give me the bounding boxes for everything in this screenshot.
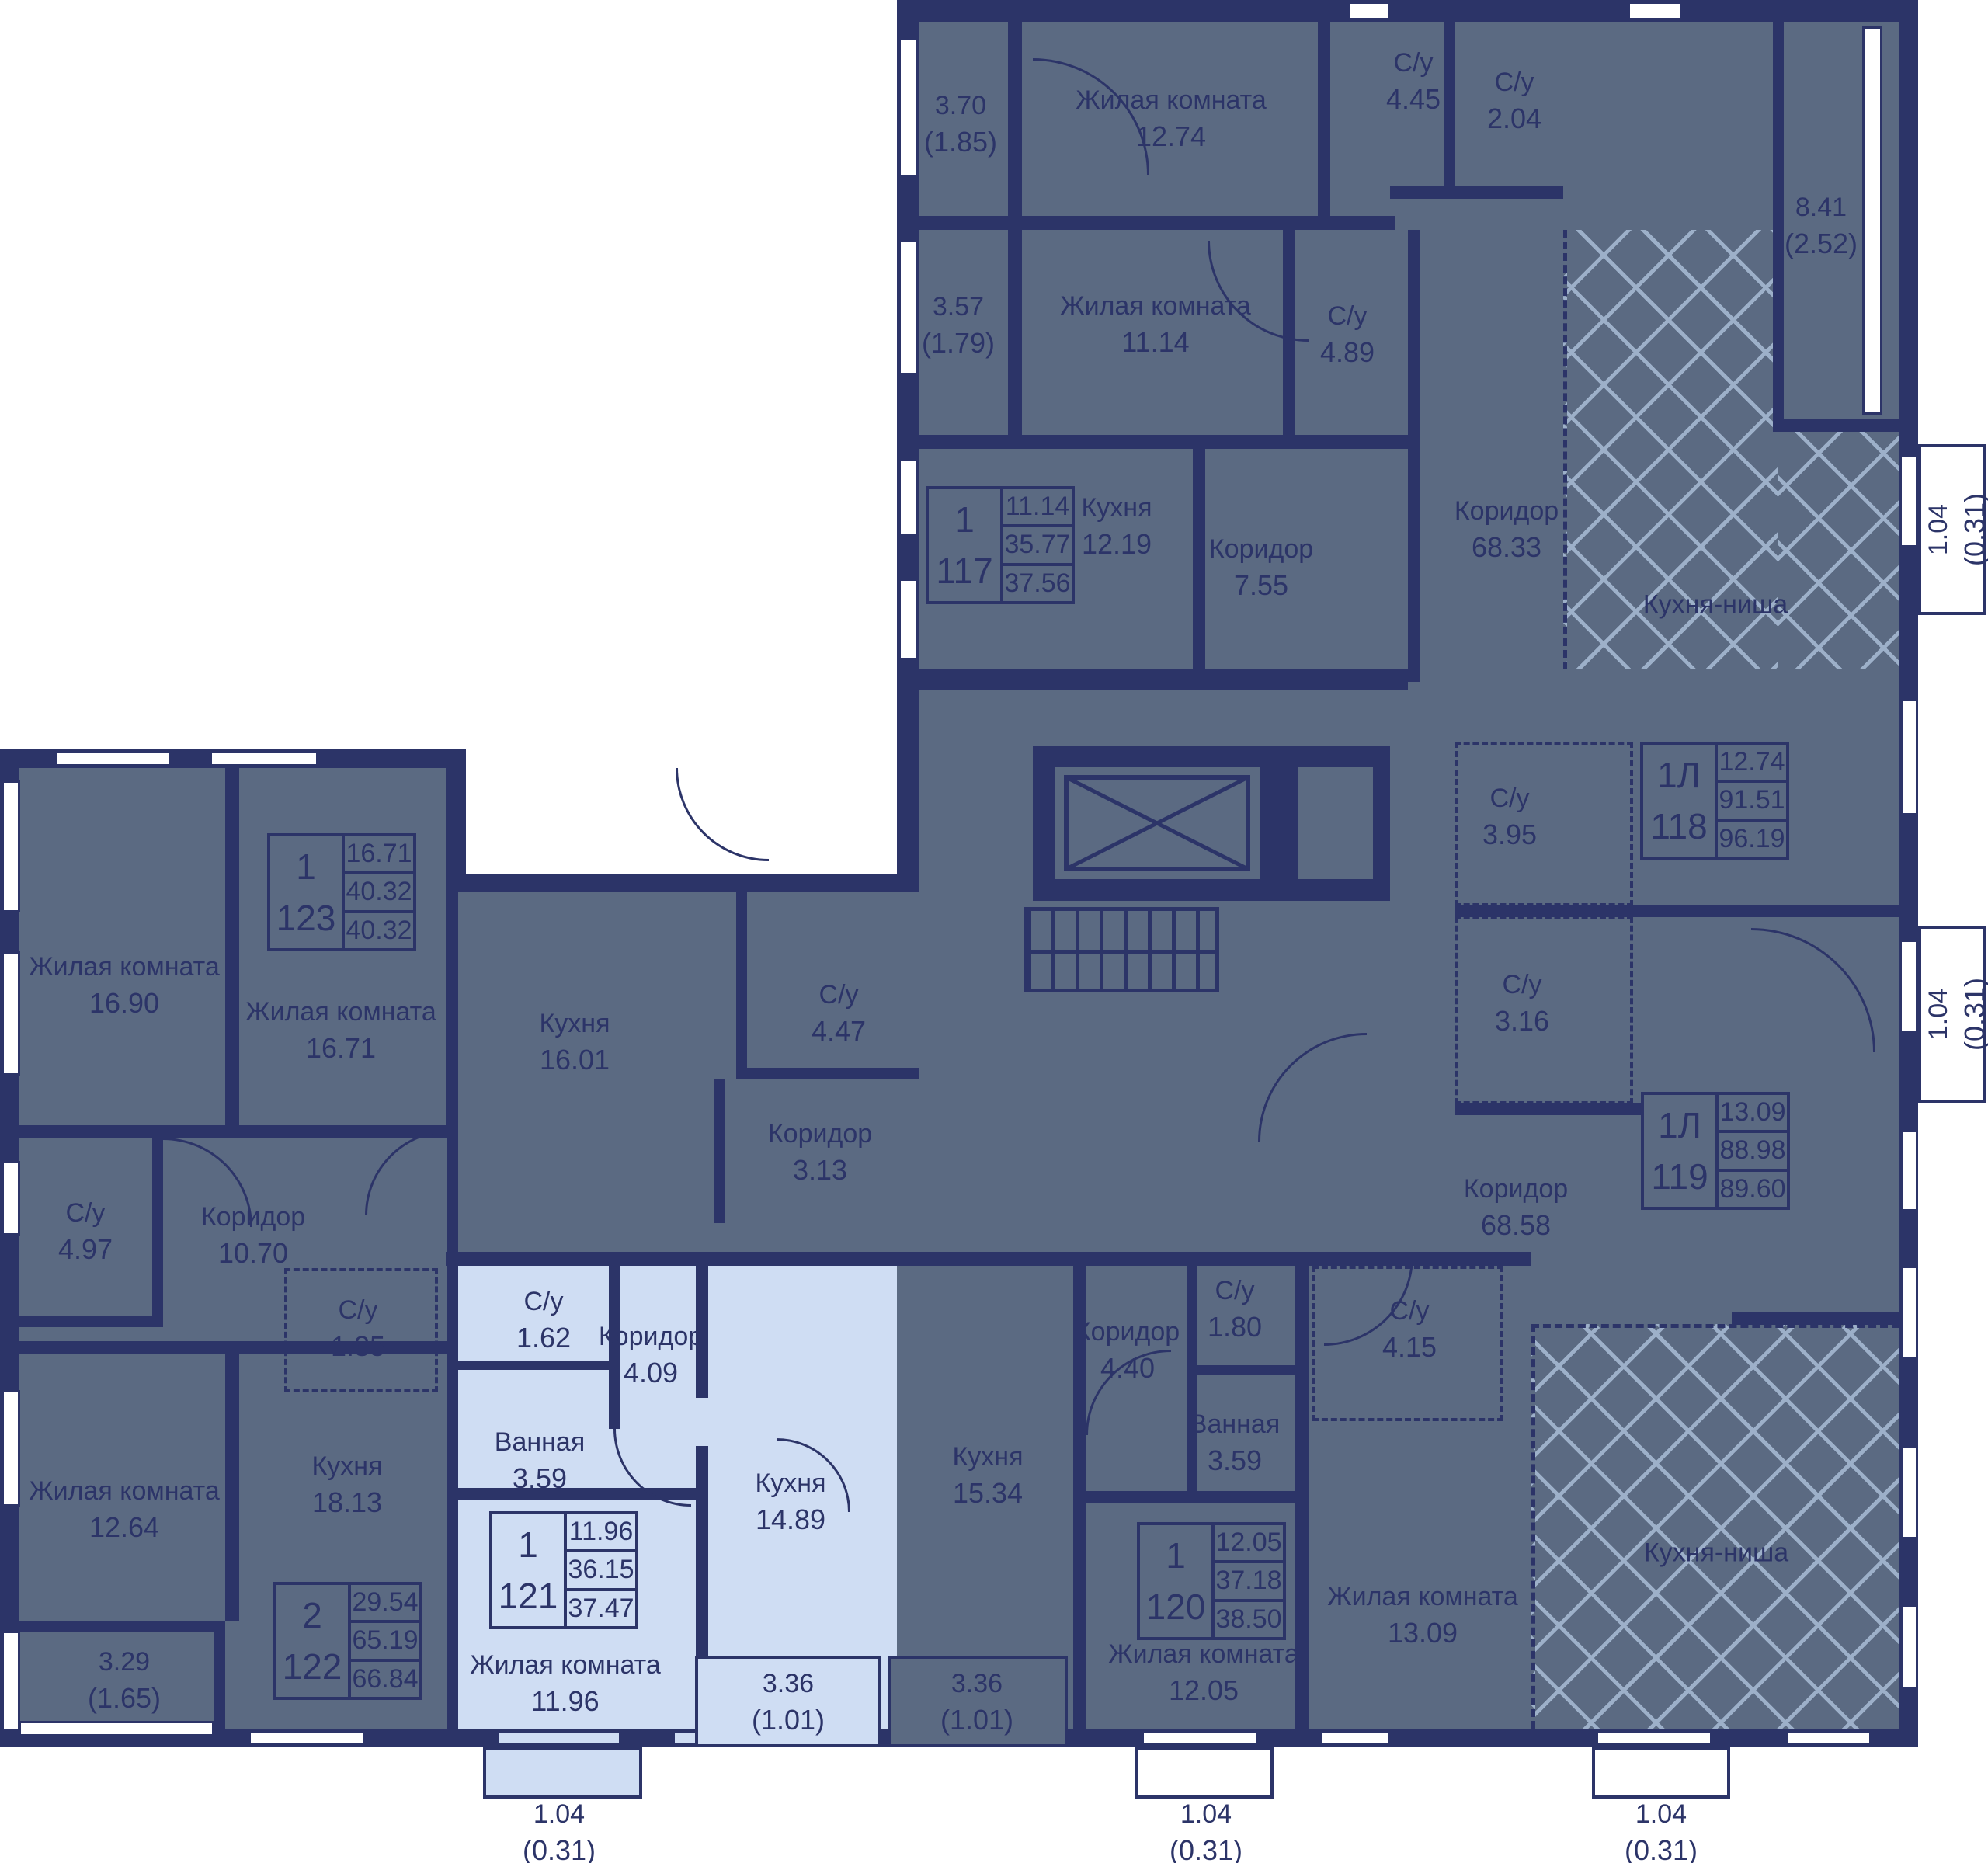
window [497,1730,621,1746]
balcony-label-336-left: 3.36 (1.01) [752,1667,825,1738]
apartment-number: 117 [936,550,992,592]
room-label-corridor-313: Коридор 3.13 [768,1117,872,1188]
balcony-reduced-area: (0.31) [1956,978,1988,1051]
window [1628,2,1682,20]
balcony-reduced-area: (1.79) [922,325,995,362]
total-area: 38.50 [1215,1602,1283,1637]
balcony-area: 3.36 [940,1667,1013,1701]
room-name: Жилая комната [1327,1580,1518,1614]
wall [214,1621,225,1736]
wall [1187,1365,1295,1375]
wall [19,1621,221,1632]
room-name: С/у [1382,1294,1437,1329]
wall [225,1354,239,1621]
balcony-area: 3.70 [924,89,997,123]
wall [919,435,1419,449]
window [1899,454,1918,547]
apartment-card-119: 1Л 119 13.09 88.98 89.60 [1641,1092,1790,1210]
room-label-living-1196: Жилая комната 11.96 [470,1648,661,1719]
room-area: 12.05 [1108,1672,1299,1709]
apartment-type: 1 [296,846,316,888]
total-area: 96.19 [1718,822,1786,857]
balcony-reduced-area: (0.31) [1170,1832,1242,1863]
kitchen-niche-hatch-bottom [1531,1324,1899,1729]
total-area: 40.32 [345,913,413,948]
balcony-area: 3.29 [88,1645,161,1680]
room-label-kitchen-1534: Кухня 15.34 [953,1440,1024,1511]
wall [1455,1103,1644,1115]
apartment-card-122: 2 122 29.54 65.19 66.84 [273,1582,422,1700]
apartment-number: 123 [276,897,336,939]
wall [1455,905,1899,917]
balcony-label-370: 3.70 (1.85) [924,89,997,160]
apartment-area: 35.77 [1003,527,1072,565]
wall [1408,230,1420,682]
room-label-living-1205: Жилая комната 12.05 [1108,1637,1299,1708]
room-area: 4.15 [1382,1329,1437,1366]
room-label-living-1690: Жилая комната 16.90 [29,950,220,1021]
apartment-card-121: 1 121 11.96 36.15 37.47 [489,1511,638,1629]
room-name: С/у [1495,968,1549,1003]
window [54,751,171,766]
room-area: 10.70 [201,1235,305,1272]
balcony-label-104-bottom-1: 1.04 (0.31) [523,1797,596,1863]
apartment-card-118: 1Л 118 12.74 91.51 96.19 [1640,742,1789,860]
balcony-area: 1.04 [1921,493,1956,566]
room-area: 2.04 [1487,100,1541,137]
wall [1318,22,1330,216]
balcony-reduced-area: (0.31) [1956,493,1988,566]
room-label-living-1114: Жилая комната 11.14 [1060,289,1251,360]
elevator-icon [1064,775,1250,871]
room-name: С/у [1320,299,1375,334]
room-label-su489: С/у 4.89 [1320,299,1375,370]
room-area: 3.13 [768,1152,872,1189]
living-area: 12.05 [1215,1525,1283,1563]
apartment-area: 40.32 [345,874,413,912]
room-label-living-1671: Жилая комната 16.71 [245,995,436,1066]
room-name: Жилая комната [1060,289,1251,324]
apartment-areas: 11.96 36.15 37.47 [567,1514,635,1626]
room-area: 4.89 [1320,334,1375,371]
room-label-su497: С/у 4.97 [58,1196,113,1267]
balcony-label-357: 3.57 (1.79) [922,290,995,361]
room-label-corridor-6858: Коридор 68.58 [1464,1172,1568,1243]
room-area: 68.33 [1455,529,1559,566]
room-name: С/у [812,978,866,1013]
room-name: С/у [58,1196,113,1231]
room-name: Коридор [768,1117,872,1152]
window [1901,1604,1918,1690]
wall [225,768,239,1125]
wall [1732,1312,1899,1325]
wall [1008,230,1022,435]
room-name: Кухня [756,1466,826,1501]
apartment-area: 91.51 [1718,783,1786,821]
balcony-area: 3.36 [752,1667,825,1701]
room-name: С/у [1487,65,1541,100]
room-area: 12.64 [29,1509,220,1546]
balcony-box-bottom-3 [1592,1747,1730,1799]
window [1320,1730,1390,1746]
wall [152,1133,163,1327]
room-label-su185: С/у 1.85 [331,1293,385,1364]
apartment-type-number: 1Л 119 [1644,1095,1719,1207]
room-name: Коридор [1455,494,1559,529]
apartment-number: 120 [1146,1586,1206,1628]
window [2,1631,20,1732]
living-area: 11.14 [1003,489,1072,527]
room-area: 11.96 [470,1683,661,1720]
balcony-area: 1.04 [1921,978,1956,1051]
room-label-su395: С/у 3.95 [1482,781,1537,853]
room-label-su415: С/у 4.15 [1382,1294,1437,1365]
apartment-type-number: 1Л 118 [1643,745,1718,857]
living-area: 29.54 [351,1585,419,1623]
apartment-area: 65.19 [351,1623,419,1661]
room-name: Жилая комната [29,1474,220,1509]
room-area: 12.74 [1076,118,1267,155]
room-label-su180: С/у 1.80 [1208,1274,1262,1345]
room-name: Коридор [1209,532,1313,567]
wall [919,216,1395,230]
window [1596,1730,1712,1746]
room-area: 18.13 [312,1484,383,1521]
room-area: 4.40 [1076,1350,1180,1387]
apartment-areas: 12.05 37.18 38.50 [1215,1525,1283,1637]
room-label-corridor-755: Коридор 7.55 [1209,532,1313,603]
room-label-corridor-6833: Коридор 68.33 [1455,494,1559,565]
room-name: Кухня [540,1006,610,1041]
balcony-label-329: 3.29 (1.65) [88,1645,161,1716]
apartment-type: 1 [518,1524,538,1566]
room-area: 4.47 [812,1013,866,1050]
window [898,458,919,536]
total-area: 37.47 [567,1591,635,1626]
apartment-area: 36.15 [567,1552,635,1590]
apartment-type: 2 [302,1594,322,1636]
room-area: 3.59 [495,1460,585,1497]
door-arc [676,768,769,861]
apartment-type: 1Л [1658,1104,1701,1146]
apartment-areas: 13.09 88.98 89.60 [1719,1095,1787,1207]
room-label-living-1309: Жилая комната 13.09 [1327,1580,1518,1651]
apartment-card-117: 1 117 11.14 35.77 37.56 [926,486,1075,604]
apartment-type-number: 1 121 [492,1514,567,1626]
living-area: 13.09 [1719,1095,1787,1133]
room-label-corridor-440: Коридор 4.40 [1076,1315,1180,1386]
window [210,751,318,766]
apartment-areas: 29.54 65.19 66.84 [351,1585,419,1697]
balcony-reduced-area: (0.31) [523,1832,596,1863]
wall [1193,449,1205,669]
room-area: 11.14 [1060,324,1251,361]
balcony-box-bottom-1 [483,1747,642,1799]
living-area: 12.74 [1718,745,1786,783]
apartment-number: 119 [1651,1156,1708,1197]
window [248,1730,365,1746]
room-label-su316: С/у 3.16 [1495,968,1549,1039]
apartment-type-number: 1 117 [929,489,1003,601]
balcony-area: 1.04 [1170,1797,1242,1832]
balcony-label-104-right-mid: 1.04 (0.31) [1921,978,1988,1051]
room-area: 12.19 [1082,526,1152,563]
window [898,579,919,660]
window [898,37,919,177]
room-area: 16.90 [29,985,220,1022]
window [1899,940,1918,1033]
room-label-corridor-409: Коридор 4.09 [599,1319,703,1391]
wall [1073,1491,1308,1503]
balcony-reduced-area: (1.85) [924,123,997,161]
balcony-label-104-bottom-2: 1.04 (0.31) [1170,1797,1242,1863]
room-label-su162: С/у 1.62 [516,1284,571,1356]
room-area: 16.71 [245,1030,436,1067]
wall [1773,419,1899,432]
window [2,1390,20,1507]
wall [1008,22,1022,216]
apartment-type-number: 2 122 [276,1585,351,1697]
floor-plan: Жилая комната 12.74 С/у 4.45 С/у 2.04 Жи… [0,0,1988,1863]
window [1786,1730,1872,1746]
room-label-living-1264: Жилая комната 12.64 [29,1474,220,1545]
room-label-kitchen-1813: Кухня 18.13 [312,1449,383,1521]
balcony-reduced-area: (1.01) [940,1701,1013,1739]
total-area: 37.56 [1003,566,1072,601]
wall [1390,186,1563,199]
room-name: Жилая комната [29,950,220,985]
wall [1773,22,1784,426]
room-label-su445: С/у 4.45 [1386,46,1441,117]
room-name: С/у [1482,781,1537,816]
apartment-area: 37.18 [1215,1563,1283,1601]
room-area: 13.09 [1327,1614,1518,1652]
apartment-type-number: 1 120 [1140,1525,1215,1637]
balcony-label-104-bottom-3: 1.04 (0.31) [1625,1797,1698,1863]
apartment-number: 121 [499,1575,558,1617]
balcony-area: 3.57 [922,290,995,325]
window [1142,1730,1258,1746]
room-name: Кухня [953,1440,1024,1475]
balcony-label-104-right-top: 1.04 (0.31) [1921,493,1988,566]
room-name: С/у [331,1293,385,1328]
apartment-number: 122 [283,1646,342,1687]
room-label-kitchen-1219: Кухня 12.19 [1082,491,1152,562]
room-name: Кухня-ниша [1644,1536,1788,1571]
room-area: 1.62 [516,1319,571,1357]
total-area: 89.60 [1719,1172,1787,1207]
room-area: 15.34 [953,1475,1024,1512]
apartment-card-123: 1 123 16.71 40.32 40.32 [267,833,416,951]
shaft-floor [1298,767,1373,879]
bathroom-partition [1455,742,1633,906]
room-label-vannaya-121: Ванная 3.59 [495,1425,585,1496]
room-name: Жилая комната [1076,83,1267,118]
room-label-su447: С/у 4.47 [812,978,866,1049]
room-area: 4.45 [1386,81,1441,118]
total-area: 66.84 [351,1662,419,1697]
balcony-reduced-area: (1.01) [752,1701,825,1739]
balcony-label-841: 8.41 (2.52) [1785,190,1858,262]
room-name: С/у [1208,1274,1262,1309]
balcony-box-bottom-2 [1135,1747,1274,1799]
room-label-vannaya-120: Ванная 3.59 [1190,1407,1280,1479]
wall [736,1068,919,1079]
room-area: 1.85 [331,1328,385,1365]
room-label-kitchen-niche-bottom: Кухня-ниша [1644,1536,1788,1571]
window [1901,1130,1918,1211]
wall [19,1316,163,1327]
room-name: Коридор [1076,1315,1180,1350]
balcony-reduced-area: (2.52) [1785,225,1858,262]
apartment-areas: 12.74 91.51 96.19 [1718,745,1786,857]
room-name: Ванная [495,1425,585,1460]
wall [919,669,1408,690]
room-area: 1.80 [1208,1309,1262,1346]
balcony-reduced-area: (0.31) [1625,1832,1698,1863]
room-area: 3.95 [1482,816,1537,853]
window [1901,1266,1918,1359]
window [19,1721,214,1736]
room-area: 4.97 [58,1231,113,1268]
apartment-type-number: 1 123 [270,836,345,948]
room-label-kitchen-1489: Кухня 14.89 [756,1466,826,1538]
room-name: Ванная [1190,1407,1280,1442]
window [1901,699,1918,815]
window [1862,26,1882,415]
window [898,239,919,375]
room-label-corridor-1070: Коридор 10.70 [201,1200,305,1271]
wall [736,892,747,1079]
room-name: Жилая комната [245,995,436,1030]
apartment-type: 1Л [1657,754,1701,796]
room-area: 14.89 [756,1501,826,1538]
wall [446,768,458,1133]
room-name: Коридор [1464,1172,1568,1207]
room-area: 7.55 [1209,567,1313,604]
wall [714,1079,725,1223]
room-area: 68.58 [1464,1207,1568,1244]
room-name: Кухня [1082,491,1152,526]
room-label-kitchen-1601: Кухня 16.01 [540,1006,610,1078]
balcony-area: 8.41 [1785,190,1858,225]
stairs-icon [1024,907,1219,992]
living-area: 16.71 [345,836,413,874]
apartment-number: 118 [1650,805,1707,847]
room-name: Кухня-ниша [1643,588,1788,623]
apartment-card-120: 1 120 12.05 37.18 38.50 [1137,1522,1286,1640]
room-name: С/у [516,1284,571,1319]
window [2,780,20,912]
living-area: 11.96 [567,1514,635,1552]
balcony-area: 1.04 [1625,1797,1698,1832]
balcony-label-336-right: 3.36 (1.01) [940,1667,1013,1738]
wall [458,1361,609,1370]
apartment-type: 1 [1166,1535,1186,1576]
room-area: 16.01 [540,1041,610,1079]
room-name: С/у [1386,46,1441,81]
window [1347,2,1391,20]
apartment-type: 1 [954,499,975,540]
room-name: Жилая комната [470,1648,661,1683]
wall [1444,22,1455,194]
balcony-reduced-area: (1.65) [88,1680,161,1717]
window [2,1161,20,1236]
room-name: Кухня [312,1449,383,1484]
kitchen-niche-hatch-top-right [1778,432,1899,669]
room-label-kitchen-niche-top: Кухня-ниша [1643,588,1788,623]
room-label-su204: С/у 2.04 [1487,65,1541,137]
window [2,951,20,1076]
room-label-living-1274: Жилая комната 12.74 [1076,83,1267,155]
room-area: 3.16 [1495,1003,1549,1040]
room-name: Жилая комната [1108,1637,1299,1672]
apartment-area: 88.98 [1719,1133,1787,1171]
room-area: 4.09 [599,1354,703,1392]
window [1901,1446,1918,1539]
balcony-area: 1.04 [523,1797,596,1832]
room-name: Коридор [201,1200,305,1235]
room-area: 3.59 [1190,1442,1280,1479]
apartment-areas: 16.71 40.32 40.32 [345,836,413,948]
apartment-areas: 11.14 35.77 37.56 [1003,489,1072,601]
room-name: Коридор [599,1319,703,1354]
wall [19,1125,447,1138]
